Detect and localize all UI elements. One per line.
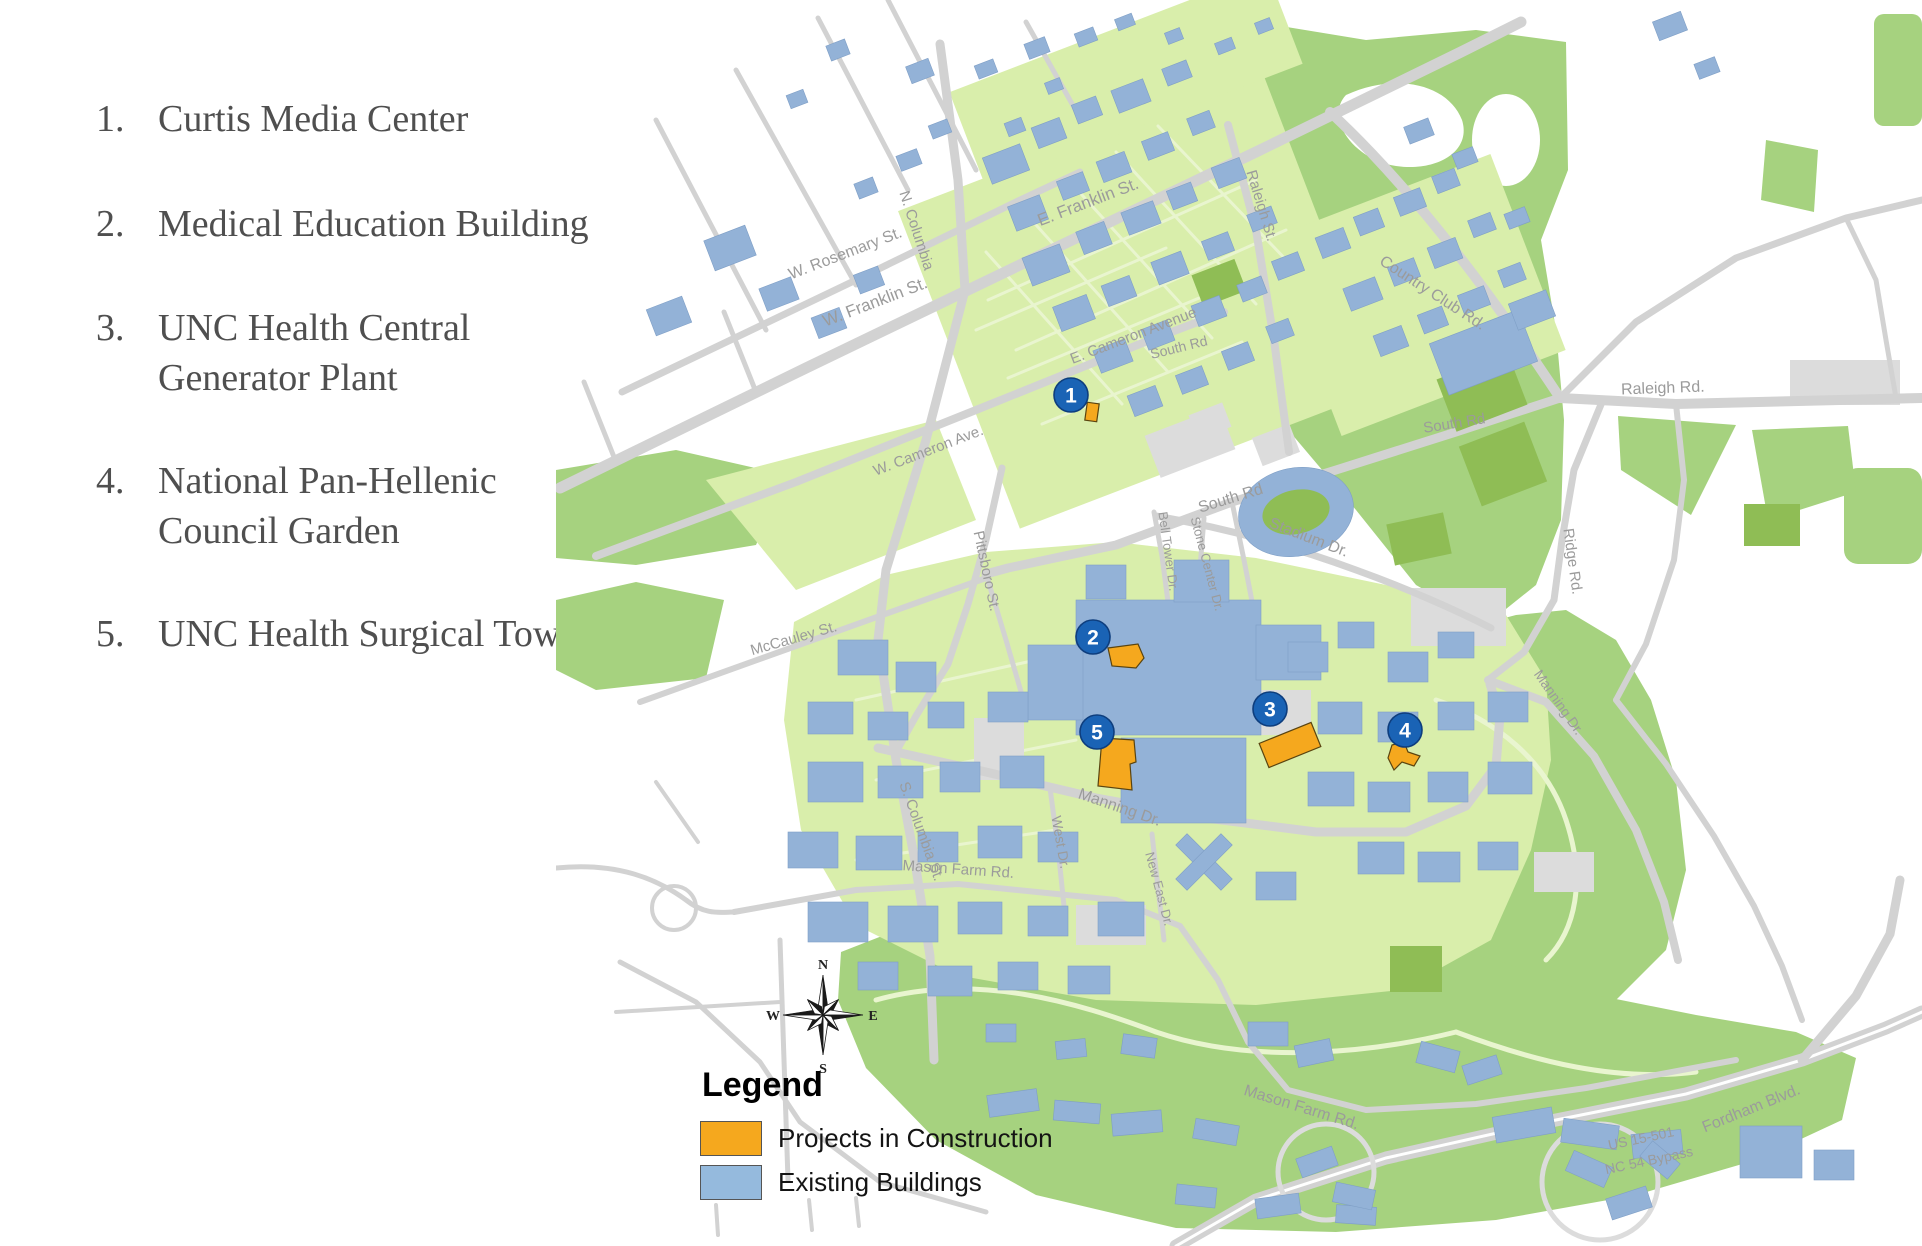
list-item-number: 3. xyxy=(96,303,158,403)
road-label: W. Rosemary St. xyxy=(786,224,904,283)
compass-west-label: W xyxy=(766,1009,780,1024)
project-list-item: 5.UNC Health Surgical Tower xyxy=(96,609,590,659)
list-item-label: Curtis Media Center xyxy=(158,94,468,144)
legend-swatch-existing-icon xyxy=(700,1165,762,1200)
page: 1.Curtis Media Center2.Medical Education… xyxy=(0,0,1922,1246)
road-label: Ridge Rd. xyxy=(1559,527,1585,595)
legend-item-existing: Existing Buildings xyxy=(700,1165,1053,1200)
construction-site-1 xyxy=(1085,402,1099,421)
campus-map: W. Rosemary St.N. ColumbiaW. Franklin St… xyxy=(556,0,1922,1246)
svg-text:2: 2 xyxy=(1087,627,1099,650)
list-item-number: 2. xyxy=(96,199,158,249)
project-list-item: 1.Curtis Media Center xyxy=(96,94,468,144)
list-item-number: 4. xyxy=(96,456,158,556)
list-item-number: 5. xyxy=(96,609,158,659)
project-list-item: 2.Medical Education Building xyxy=(96,199,589,249)
road-label: Raleigh Rd. xyxy=(1621,379,1705,399)
list-item-label: UNC Health Surgical Tower xyxy=(158,609,590,659)
compass-north-label: N xyxy=(818,958,828,973)
legend-item-construction: Projects in Construction xyxy=(700,1121,1053,1156)
map-marker-3: 3 xyxy=(1253,692,1287,726)
compass-east-label: E xyxy=(868,1009,877,1024)
svg-text:1: 1 xyxy=(1065,385,1077,408)
campus-map-svg: W. Rosemary St.N. ColumbiaW. Franklin St… xyxy=(556,0,1922,1246)
map-marker-5: 5 xyxy=(1080,715,1114,749)
list-item-label: Medical Education Building xyxy=(158,199,589,249)
project-list-panel: 1.Curtis Media Center2.Medical Education… xyxy=(0,0,556,1246)
svg-text:4: 4 xyxy=(1399,720,1411,743)
construction-site-2 xyxy=(1108,644,1144,668)
legend-title: Legend xyxy=(702,1066,1053,1105)
legend-label-existing: Existing Buildings xyxy=(778,1167,982,1198)
project-list-item: 4.National Pan-HellenicCouncil Garden xyxy=(96,456,497,556)
list-item-number: 1. xyxy=(96,94,158,144)
legend-label-construction: Projects in Construction xyxy=(778,1123,1053,1154)
map-marker-1: 1 xyxy=(1054,378,1088,412)
map-marker-4: 4 xyxy=(1388,713,1422,747)
svg-text:3: 3 xyxy=(1264,699,1276,722)
list-item-label: National Pan-HellenicCouncil Garden xyxy=(158,456,497,556)
map-legend: Legend Projects in Construction Existing… xyxy=(700,1066,1053,1209)
svg-text:5: 5 xyxy=(1091,722,1103,745)
map-marker-2: 2 xyxy=(1076,620,1110,654)
legend-swatch-construction-icon xyxy=(700,1121,762,1156)
list-item-label: UNC Health CentralGenerator Plant xyxy=(158,303,470,403)
project-list-item: 3.UNC Health CentralGenerator Plant xyxy=(96,303,470,403)
